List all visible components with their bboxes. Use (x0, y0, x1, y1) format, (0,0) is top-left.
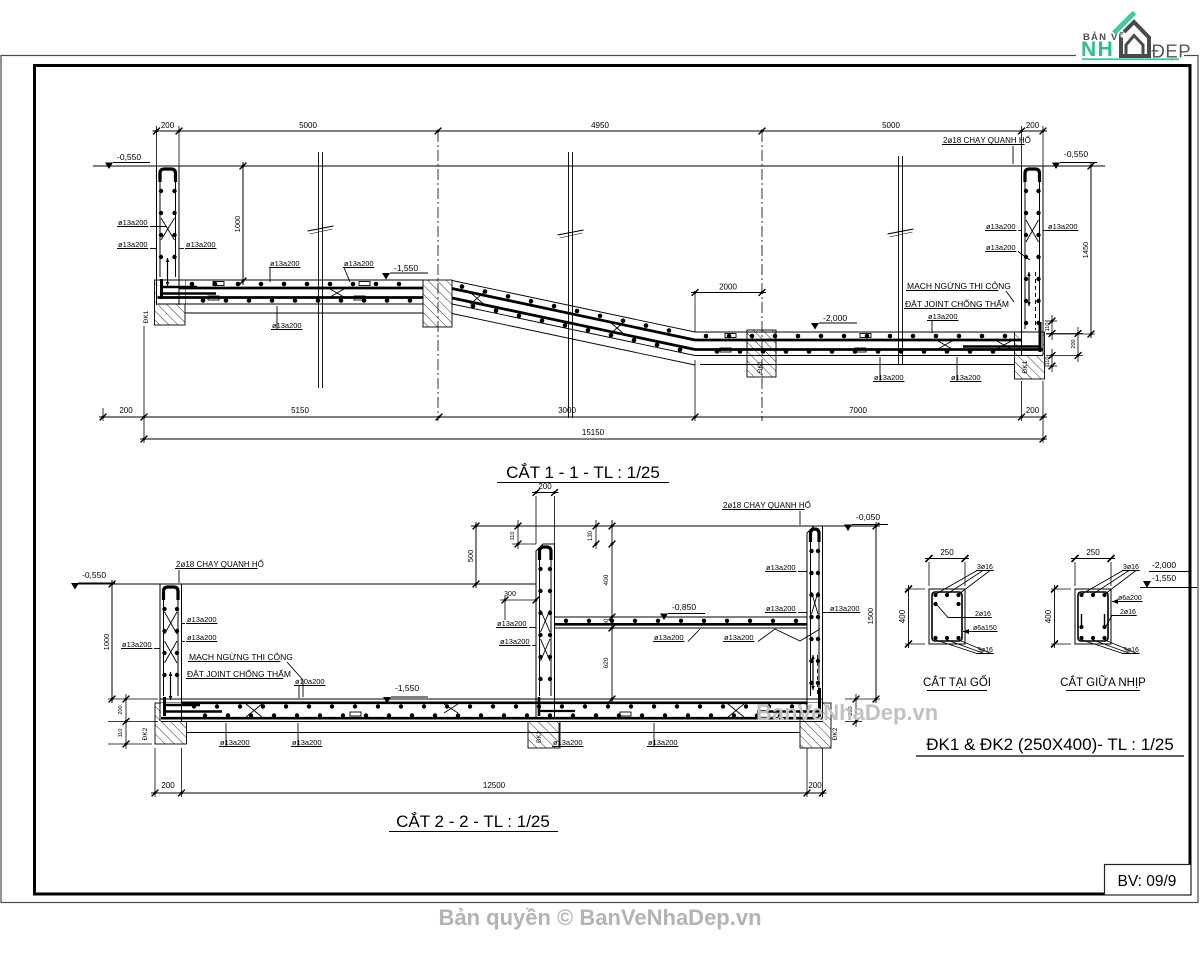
svg-text:ĐK1: ĐK1 (143, 310, 150, 323)
svg-text:ĐẶT JOINT CHỐNG THẤM: ĐẶT JOINT CHỐNG THẤM (905, 298, 1009, 309)
svg-text:CẮT 2 - 2 - TL : 1/25: CẮT 2 - 2 - TL : 1/25 (396, 812, 550, 831)
svg-text:ø13a200: ø13a200 (186, 240, 216, 249)
svg-text:-1,550: -1,550 (1152, 573, 1176, 583)
svg-text:200: 200 (161, 121, 175, 130)
svg-text:40: 40 (604, 618, 610, 625)
svg-text:ø6a200: ø6a200 (1118, 595, 1142, 602)
svg-text:ø13a200: ø13a200 (766, 563, 796, 572)
svg-text:ĐẶT JOINT CHỐNG THẤM: ĐẶT JOINT CHỐNG THẤM (187, 668, 291, 679)
svg-text:200: 200 (161, 781, 175, 790)
svg-text:110: 110 (1045, 323, 1051, 332)
svg-text:-0,550: -0,550 (82, 570, 106, 580)
svg-text:5000: 5000 (299, 121, 317, 130)
svg-text:ĐK2: ĐK2 (142, 727, 149, 740)
svg-text:MẠCH NGỪNG THI CÔNG: MẠCH NGỪNG THI CÔNG (907, 281, 1011, 291)
svg-text:CẮT GIỮA NHỊP: CẮT GIỮA NHỊP (1060, 676, 1146, 689)
svg-text:130: 130 (588, 530, 594, 541)
svg-text:200: 200 (538, 482, 552, 491)
svg-text:-0,550: -0,550 (1064, 149, 1088, 159)
svg-text:ø13a200: ø13a200 (654, 633, 684, 642)
svg-text:ø13a200: ø13a200 (270, 259, 300, 268)
svg-text:500: 500 (466, 550, 475, 563)
svg-text:5000: 5000 (882, 121, 900, 130)
svg-text:-0,050: -0,050 (856, 512, 880, 522)
svg-text:400: 400 (898, 609, 907, 623)
svg-text:400: 400 (603, 574, 610, 585)
svg-text:ĐK1: ĐK1 (758, 361, 764, 373)
svg-text:CẮT 1 - 1 - TL : 1/25: CẮT 1 - 1 - TL : 1/25 (506, 463, 660, 482)
svg-text:4950: 4950 (591, 121, 609, 130)
svg-text:ø13a200: ø13a200 (344, 259, 374, 268)
svg-text:7000: 7000 (849, 406, 867, 415)
svg-text:12500: 12500 (483, 781, 506, 790)
svg-text:5150: 5150 (291, 406, 309, 415)
svg-text:2ø16: 2ø16 (1120, 609, 1136, 616)
svg-text:ø13a200: ø13a200 (830, 604, 860, 613)
svg-text:ø13a200: ø13a200 (118, 218, 148, 227)
svg-text:3000: 3000 (558, 406, 576, 415)
svg-text:-0,850: -0,850 (672, 602, 696, 612)
svg-text:-2,000: -2,000 (1152, 560, 1176, 570)
svg-text:1450: 1450 (1081, 242, 1090, 259)
svg-text:ø13a200: ø13a200 (724, 633, 754, 642)
svg-text:110: 110 (118, 729, 124, 738)
svg-text:1000: 1000 (102, 634, 111, 651)
svg-text:-1,550: -1,550 (395, 683, 419, 693)
svg-text:110: 110 (1045, 357, 1051, 366)
svg-text:300: 300 (504, 591, 516, 598)
svg-text:ø13a200: ø13a200 (648, 738, 678, 747)
svg-text:200: 200 (1071, 339, 1077, 348)
svg-text:ø13a200: ø13a200 (118, 240, 148, 249)
svg-text:ø13a200: ø13a200 (220, 738, 250, 747)
svg-text:2000: 2000 (719, 283, 737, 292)
svg-text:-1,550: -1,550 (394, 263, 418, 273)
svg-text:200: 200 (119, 406, 133, 415)
svg-text:3ø16: 3ø16 (1123, 564, 1139, 571)
svg-text:ø13a200: ø13a200 (986, 222, 1016, 231)
svg-text:ø10a200: ø10a200 (295, 677, 325, 686)
svg-text:200: 200 (118, 705, 124, 714)
svg-text:ĐK2: ĐK2 (832, 727, 839, 740)
svg-text:ø13a200: ø13a200 (187, 633, 217, 642)
svg-text:250: 250 (940, 548, 954, 557)
svg-text:ø13a200: ø13a200 (122, 640, 152, 649)
svg-text:200: 200 (808, 781, 822, 790)
svg-text:400: 400 (1044, 609, 1053, 623)
svg-text:2ø16: 2ø16 (975, 611, 991, 618)
svg-text:ø13a200: ø13a200 (500, 637, 530, 646)
svg-text:MẠCH NGỪNG THI CÔNG: MẠCH NGỪNG THI CÔNG (189, 652, 293, 662)
svg-text:ø13a200: ø13a200 (928, 312, 958, 321)
svg-text:1500: 1500 (866, 608, 875, 625)
svg-text:200: 200 (1026, 121, 1040, 130)
svg-text:2ø18 CHẠY QUANH HỐ: 2ø18 CHẠY QUANH HỐ (723, 500, 811, 510)
svg-text:-0,550: -0,550 (117, 152, 141, 162)
svg-text:200: 200 (1026, 406, 1040, 415)
svg-text:620: 620 (603, 657, 610, 668)
svg-text:ø13a200: ø13a200 (986, 243, 1016, 252)
svg-text:ø13a200: ø13a200 (497, 619, 527, 628)
svg-text:ø13a200: ø13a200 (1048, 222, 1078, 231)
svg-text:NH: NH (1081, 38, 1114, 61)
svg-text:-2,000: -2,000 (823, 313, 847, 323)
svg-text:3ø16: 3ø16 (977, 564, 993, 571)
svg-text:ø13a200: ø13a200 (553, 738, 583, 747)
svg-text:ø13a200: ø13a200 (272, 321, 302, 330)
svg-text:1000: 1000 (233, 216, 242, 233)
svg-text:ø13a200: ø13a200 (766, 604, 796, 613)
svg-text:ø13a200: ø13a200 (292, 738, 322, 747)
svg-text:ø13a200: ø13a200 (951, 373, 981, 382)
svg-text:ø13a200: ø13a200 (874, 373, 904, 382)
svg-text:110: 110 (510, 532, 516, 541)
svg-text:ĐK1: ĐK1 (1022, 360, 1029, 373)
svg-text:CẮT TẠI GỐI: CẮT TẠI GỐI (923, 675, 991, 689)
svg-text:15150: 15150 (582, 428, 605, 437)
svg-text:ĐK1 & ĐK2 (250X400)- TL : 1/25: ĐK1 & ĐK2 (250X400)- TL : 1/25 (926, 735, 1174, 754)
svg-text:ø13a200: ø13a200 (187, 615, 217, 624)
svg-text:Bản quyền © BanVeNhaDep.vn: Bản quyền © BanVeNhaDep.vn (438, 905, 761, 930)
svg-text:250: 250 (1086, 548, 1100, 557)
svg-text:BanVeNhaDep.vn: BanVeNhaDep.vn (756, 700, 938, 725)
svg-text:2ø18 CHẠY QUANH HỐ: 2ø18 CHẠY QUANH HỐ (943, 135, 1031, 145)
svg-text:ø6a150: ø6a150 (973, 625, 997, 632)
svg-text:BV: 09/9: BV: 09/9 (1118, 873, 1177, 890)
svg-text:2ø18 CHẠY QUANH HỐ: 2ø18 CHẠY QUANH HỐ (176, 559, 264, 569)
